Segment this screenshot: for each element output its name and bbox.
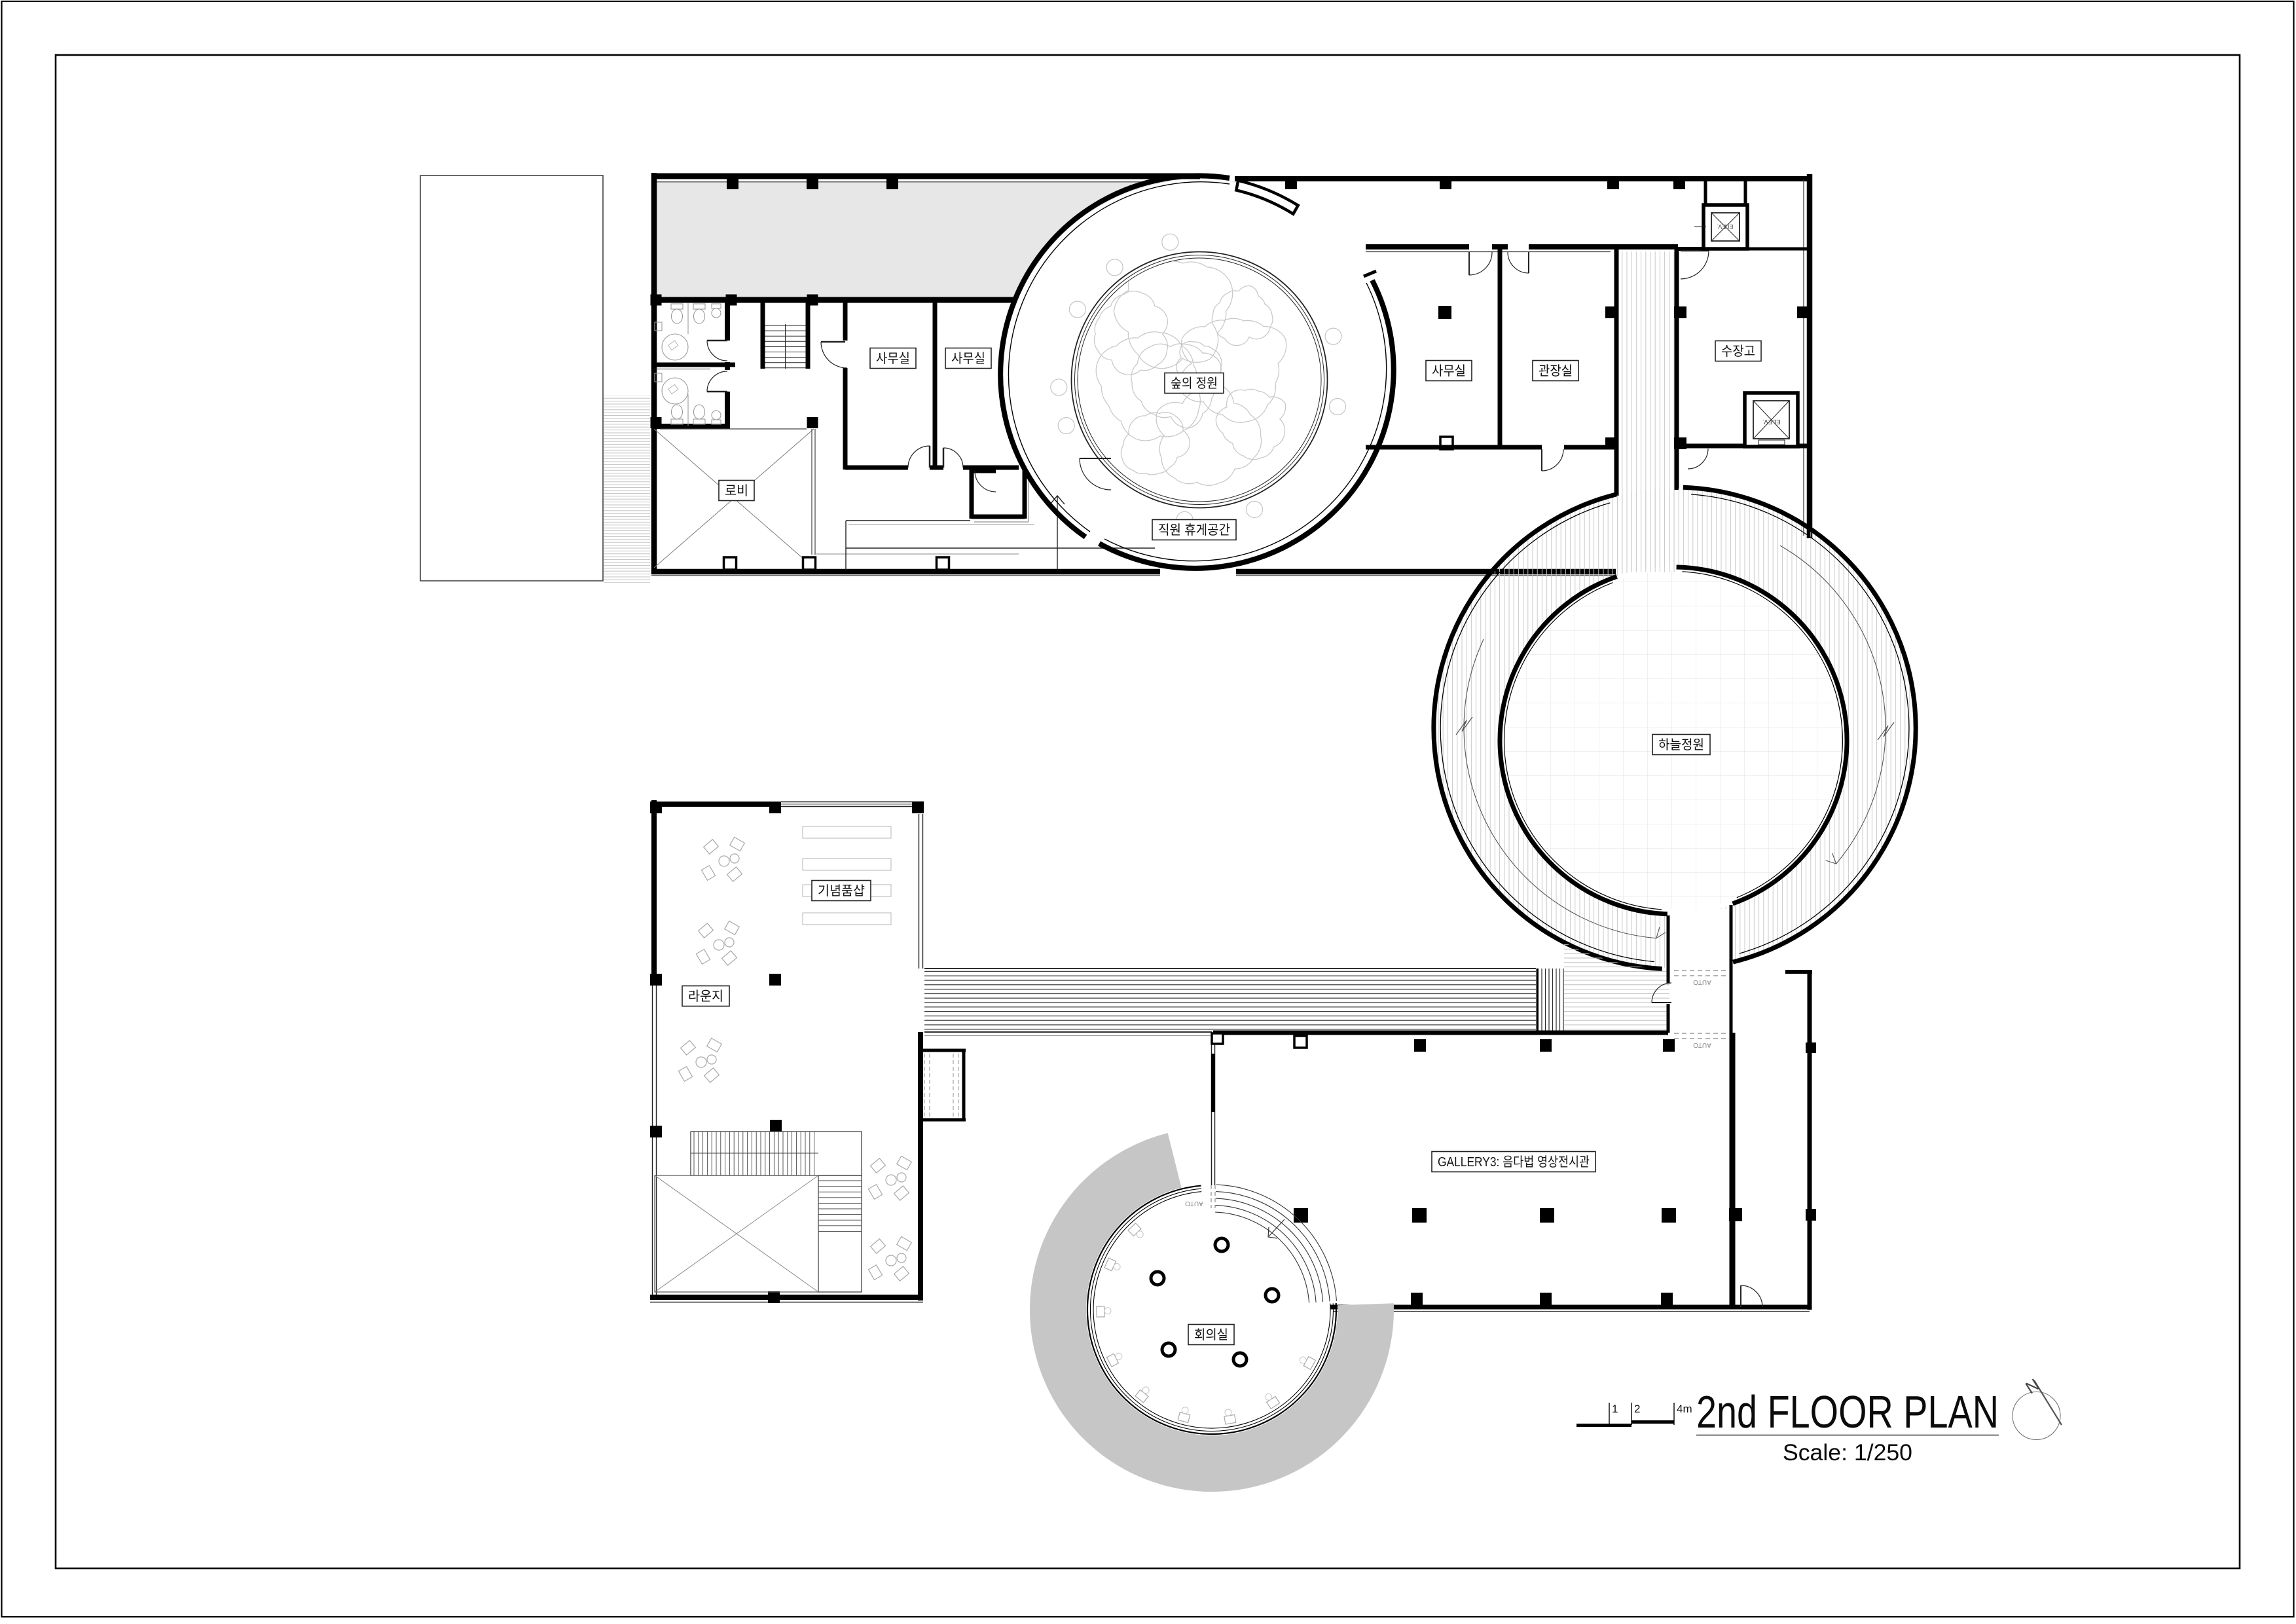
svg-text:1: 1 xyxy=(1612,1403,1618,1415)
svg-text:하늘정원: 하늘정원 xyxy=(1658,737,1704,752)
svg-text:2nd FLOOR PLAN: 2nd FLOOR PLAN xyxy=(1696,1386,1999,1437)
svg-text:ELEV.: ELEV. xyxy=(1762,418,1780,425)
svg-text:ELEV.: ELEV. xyxy=(1717,223,1734,230)
svg-text:AUTO: AUTO xyxy=(1185,1200,1203,1207)
svg-text:AUTO: AUTO xyxy=(1693,978,1711,986)
svg-text:라운지: 라운지 xyxy=(688,989,723,1004)
svg-text:회의실: 회의실 xyxy=(1194,1327,1228,1342)
svg-text:로비: 로비 xyxy=(725,483,748,498)
svg-text:관장실: 관장실 xyxy=(1539,363,1573,378)
svg-text:GALLERY3: 음다법 영상전시관: GALLERY3: 음다법 영상전시관 xyxy=(1438,1154,1590,1170)
svg-text:사무실: 사무실 xyxy=(876,351,910,366)
svg-text:수장고: 수장고 xyxy=(1721,344,1755,359)
svg-text:2: 2 xyxy=(1634,1403,1640,1415)
svg-text:기념품샵: 기념품샵 xyxy=(818,883,865,898)
svg-text:AUTO: AUTO xyxy=(1693,1041,1711,1048)
svg-text:4m: 4m xyxy=(1677,1403,1692,1415)
svg-text:사무실: 사무실 xyxy=(951,351,985,366)
svg-text:Scale: 1/250: Scale: 1/250 xyxy=(1783,1440,1912,1466)
svg-text:사무실: 사무실 xyxy=(1432,363,1466,378)
svg-text:숲의 정원: 숲의 정원 xyxy=(1171,376,1218,391)
svg-text:직원 휴게공간: 직원 휴게공간 xyxy=(1158,523,1230,538)
